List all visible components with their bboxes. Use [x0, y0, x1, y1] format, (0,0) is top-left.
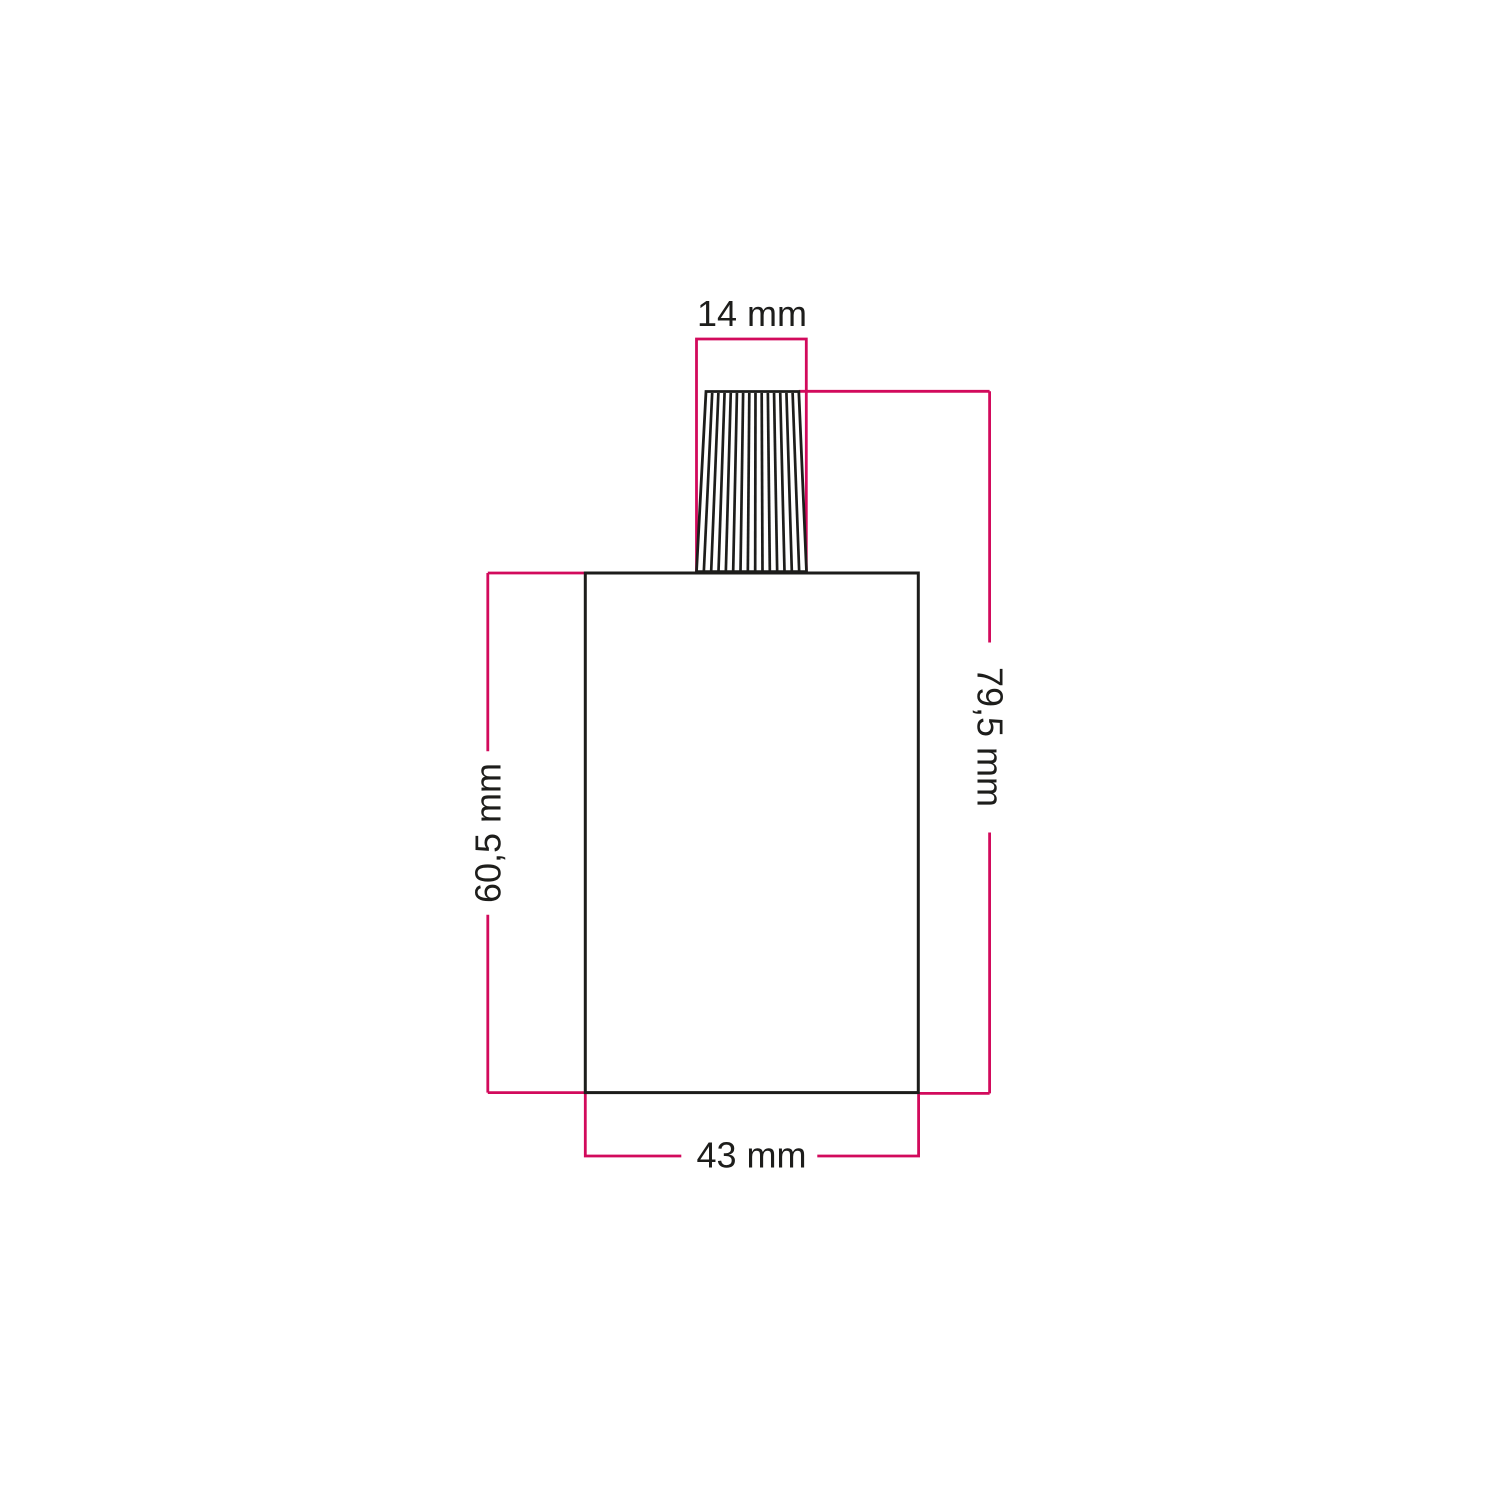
- svg-text:79,5 mm: 79,5 mm: [970, 667, 1011, 807]
- svg-text:60,5 mm: 60,5 mm: [468, 763, 509, 903]
- svg-text:43 mm: 43 mm: [696, 1135, 806, 1176]
- svg-text:14 mm: 14 mm: [697, 293, 807, 334]
